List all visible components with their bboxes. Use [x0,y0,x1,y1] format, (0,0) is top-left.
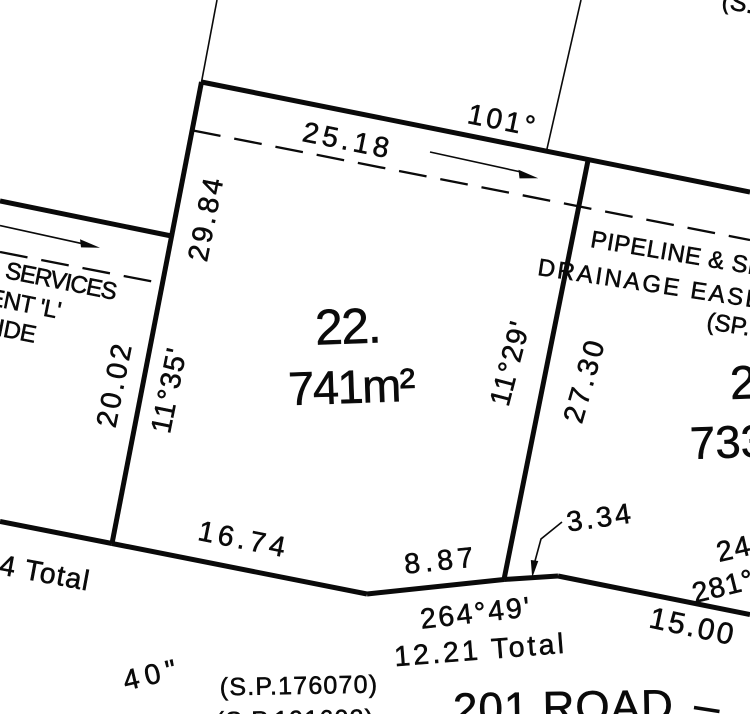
svg-text:733m²: 733m² [689,414,750,469]
svg-text:201 ROAD: 201 ROAD [453,681,675,714]
svg-text:(S.P.191602): (S.P.191602) [216,705,375,714]
svg-text:22.: 22. [314,297,381,355]
svg-text:23.: 23. [729,354,750,409]
svg-text:741m²: 741m² [287,358,415,415]
svg-text:(S.P.176070): (S.P.176070) [220,671,379,702]
